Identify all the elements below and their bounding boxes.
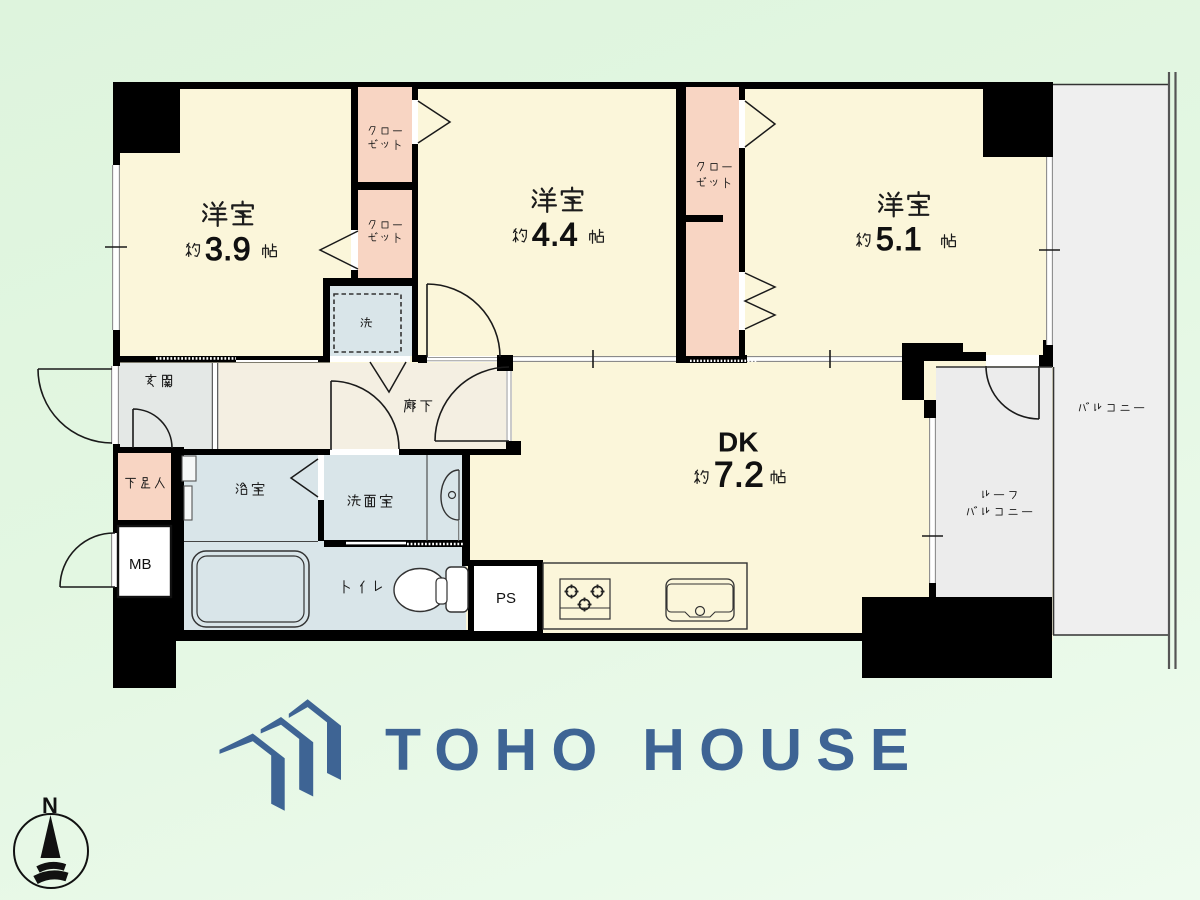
svg-text:MB: MB xyxy=(129,556,152,573)
svg-text:7.2: 7.2 xyxy=(714,456,764,495)
svg-text:TOHO HOUSE: TOHO HOUSE xyxy=(385,717,924,783)
svg-text:PS: PS xyxy=(496,590,516,607)
svg-text:4.4: 4.4 xyxy=(532,217,578,253)
svg-text:DK: DK xyxy=(718,427,758,458)
svg-text:N: N xyxy=(42,793,58,818)
svg-text:3.9: 3.9 xyxy=(205,231,251,267)
svg-text:5.1: 5.1 xyxy=(876,221,922,257)
